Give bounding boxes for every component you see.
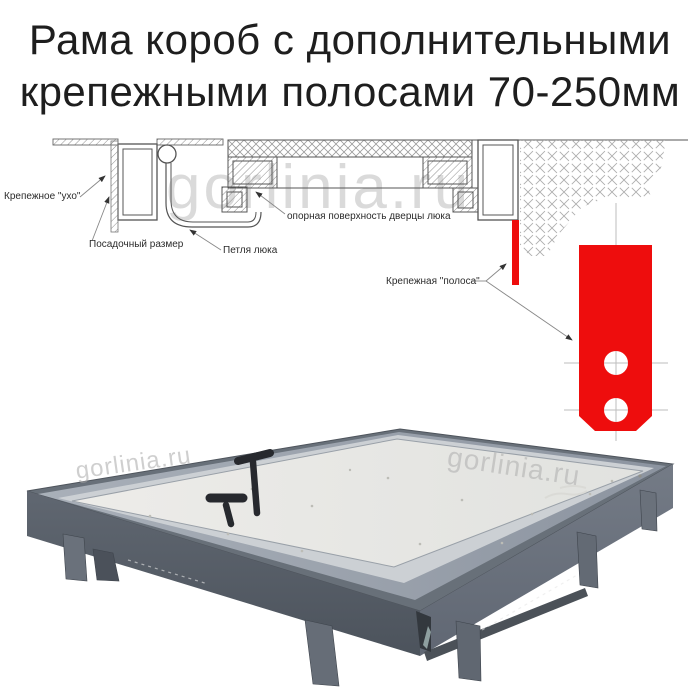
product-card: gorlinia.ru: [0, 0, 700, 700]
ceiling-slab-left: [53, 139, 118, 145]
frame-profile-left: [118, 144, 157, 220]
leader-strip-b: [486, 281, 572, 340]
wall-hatch: [520, 140, 666, 256]
label-fixing-strip: Крепежная "полоса": [386, 276, 480, 287]
fixing-strip-leg: [305, 620, 339, 686]
label-mounting-ear: Крепежное "ухо": [4, 191, 80, 202]
fixing-strip-leg: [577, 532, 598, 588]
door-profile-left: [228, 157, 277, 188]
label-seating-size: Посадочный размер: [89, 239, 183, 250]
fixing-strip-leg: [456, 621, 481, 681]
leader-strip-a: [486, 264, 506, 281]
handle-back-post: [253, 462, 257, 513]
label-hatch-hinge: Петля люка: [223, 245, 277, 256]
product-title: Рама короб с дополнительными крепежными …: [0, 14, 700, 118]
leader-lines: [80, 176, 572, 340]
door-leaf: [228, 140, 472, 157]
fixing-strip-inplace: [512, 220, 519, 285]
mounting-ear: [111, 141, 118, 232]
leader-seating: [92, 197, 109, 241]
product-title-line1: Рама короб с дополнительными: [0, 14, 700, 66]
fixing-strip-leg: [63, 534, 87, 581]
fixing-strip-leg: [640, 490, 657, 531]
hinge-bracket-left: [222, 187, 247, 212]
hinge-pin: [158, 145, 176, 163]
leader-hinge: [190, 230, 221, 250]
leader-support: [256, 192, 285, 214]
label-support-surface: опорная поверхность дверцы люка: [287, 211, 451, 222]
technical-diagram: [53, 139, 688, 441]
door-profile-right: [423, 157, 472, 188]
leader-ear: [80, 176, 105, 197]
frame-profile-right: [478, 140, 518, 220]
ceiling-slab-right: [157, 139, 223, 145]
product-title-line2: крепежными полосами 70-250мм: [0, 66, 700, 118]
